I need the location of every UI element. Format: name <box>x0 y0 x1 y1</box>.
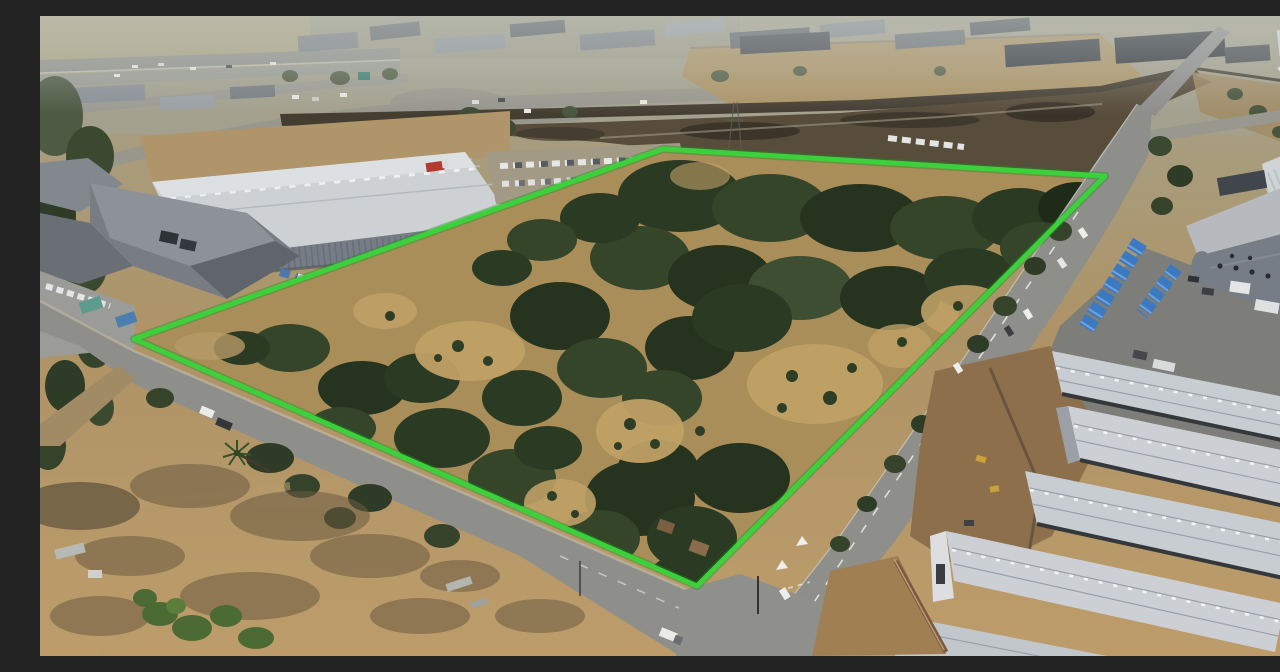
roller-door <box>936 564 945 584</box>
aerial-photo <box>40 16 1280 656</box>
atmospheric-haze <box>40 16 1280 276</box>
